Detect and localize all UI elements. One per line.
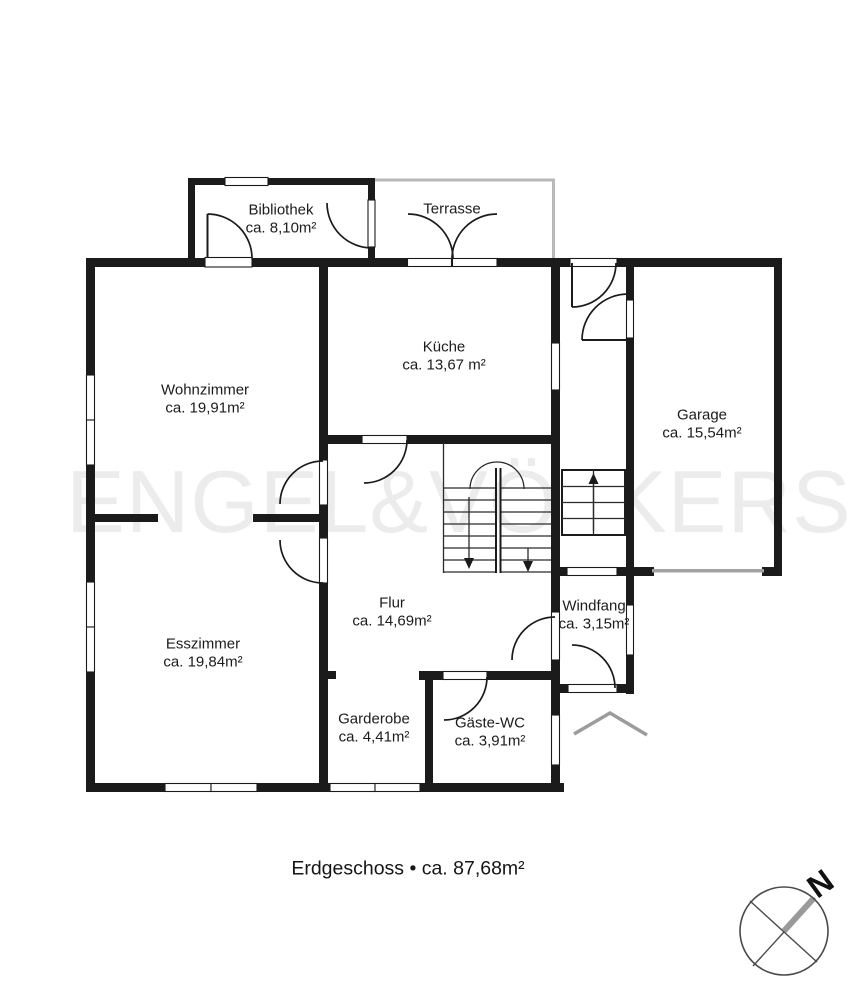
room-label-esszimmer: Esszimmer ca. 19,84m²	[163, 636, 242, 671]
floor-plan-drawing: N	[0, 0, 868, 1000]
terrace-outline	[375, 180, 554, 258]
room-name: Garderobe	[338, 711, 410, 729]
room-name: Terrasse	[423, 200, 481, 218]
compass-rose: N	[740, 862, 840, 975]
room-area: ca. 15,54m²	[662, 424, 741, 442]
door-swings	[208, 203, 629, 720]
room-area: ca. 19,84m²	[163, 653, 242, 671]
room-name: Küche	[402, 339, 485, 357]
room-name: Gäste-WC	[455, 715, 526, 733]
garage-door	[652, 569, 764, 573]
floor-plan-page: ENGEL&VÖLKERS	[0, 0, 868, 1000]
compass-north-label: N	[800, 862, 840, 905]
room-area: ca. 19,91m²	[161, 399, 249, 417]
room-label-wohnzimmer: Wohnzimmer ca. 19,91m²	[161, 382, 249, 417]
room-name: Wohnzimmer	[161, 382, 249, 400]
room-label-gaeste-wc: Gäste-WC ca. 3,91m²	[455, 715, 526, 750]
room-name: Windfang	[559, 598, 630, 616]
main-staircase	[444, 443, 552, 573]
room-area: ca. 13,67 m²	[402, 356, 485, 374]
walls	[86, 178, 782, 792]
compass-north-needle	[784, 899, 813, 931]
room-area: ca. 14,69m²	[352, 612, 431, 630]
room-area: ca. 3,91m²	[455, 732, 526, 750]
room-label-bibliothek: Bibliothek ca. 8,10m²	[246, 202, 317, 237]
room-label-garage: Garage ca. 15,54m²	[662, 407, 741, 442]
room-area: ca. 3,15m²	[559, 615, 630, 633]
room-name: Garage	[662, 407, 741, 425]
room-area: ca. 8,10m²	[246, 219, 317, 237]
garage-steps	[562, 470, 625, 535]
entrance-canopy	[574, 713, 647, 735]
room-name: Bibliothek	[246, 202, 317, 220]
room-name: Esszimmer	[163, 636, 242, 654]
room-label-kueche: Küche ca. 13,67 m²	[402, 339, 485, 374]
room-area: ca. 4,41m²	[338, 728, 410, 746]
room-label-garderobe: Garderobe ca. 4,41m²	[338, 711, 410, 746]
room-label-windfang: Windfang ca. 3,15m²	[559, 598, 630, 633]
floor-caption: Erdgeschoss • ca. 87,68m²	[291, 858, 524, 881]
room-name: Flur	[352, 595, 431, 613]
room-label-flur: Flur ca. 14,69m²	[352, 595, 431, 630]
room-label-terrasse: Terrasse	[423, 200, 481, 218]
